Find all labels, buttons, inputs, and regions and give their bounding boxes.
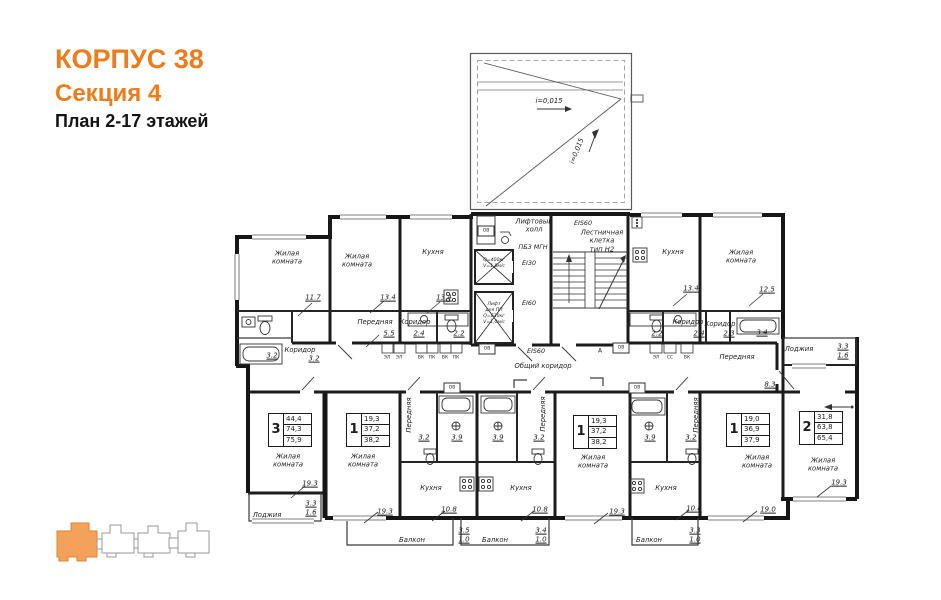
room-area: 12.5 <box>759 286 775 295</box>
lift-hall-label: Лифтовый холл <box>515 218 552 235</box>
vent-box: ОВ <box>613 343 630 354</box>
pbz-label: ПБЗ МГН <box>518 243 547 251</box>
living-area: 19,3 <box>589 416 616 427</box>
room-name: Жилая комната <box>808 457 838 474</box>
keyplan <box>57 523 209 561</box>
shaft-label: ПК <box>453 356 459 361</box>
vent-box: ОВ <box>478 226 495 237</box>
stove-icon <box>630 479 644 493</box>
room-name: Передняя <box>692 397 700 432</box>
apartment-stamp: 1 19,0 36,9 37,9 <box>726 413 770 447</box>
living-area: 19,0 <box>742 414 769 425</box>
lift-spec-label: Лифт для ПП Q=630кг V=1,0м/с <box>483 302 505 326</box>
room-area-reduced: 1.0 <box>458 536 469 545</box>
stove-icon <box>633 248 647 262</box>
staircase-label: Лестничная клетка тип Н2 <box>581 228 624 253</box>
fire-rating-label: EIS60 <box>574 219 592 227</box>
room-area: 2.2 <box>453 330 464 339</box>
room-area: 3.2 <box>266 352 277 361</box>
room-area: 5.5 <box>383 330 394 339</box>
room-area: 3.3 <box>689 527 700 536</box>
room-name: Кухня <box>655 484 676 492</box>
shaft-label: ВК <box>418 356 424 361</box>
apartment-area: 74,3 <box>284 425 311 436</box>
room-area: 2.4 <box>693 330 704 339</box>
apartment-rooms-count: 3 <box>269 414 284 446</box>
room-area: 3.9 <box>451 434 462 443</box>
stairs <box>553 252 628 309</box>
building-title: КОРПУС 38 <box>55 44 204 75</box>
room-area-reduced: 1.6 <box>305 509 316 518</box>
room-area: 13.4 <box>683 285 699 294</box>
total-area: 37,9 <box>742 436 769 446</box>
section-title: Секция 4 <box>55 80 161 108</box>
bathtub-icon <box>439 396 473 413</box>
room-area: 3.9 <box>644 434 655 443</box>
apartment-area: 63,8 <box>815 423 842 434</box>
total-area: 75,9 <box>284 436 311 446</box>
common-corridor-label: Общий коридор <box>514 362 571 370</box>
apartment-stamp: 1 19,3 37,2 38,2 <box>573 415 617 449</box>
room-area: 19.3 <box>302 480 318 489</box>
room-area: 11.7 <box>305 294 321 303</box>
room-area: 8.3 <box>764 381 775 390</box>
total-area: 65,4 <box>815 434 842 444</box>
room-area: 3.2 <box>533 434 544 443</box>
keyplan-section-1 <box>178 523 209 553</box>
shaft-label: ВК <box>442 356 448 361</box>
total-area: 38,2 <box>362 436 389 446</box>
total-area: 38,2 <box>589 438 616 448</box>
shaft-label: ЭЛ <box>384 356 390 361</box>
apartment-rooms-count: 1 <box>574 416 589 448</box>
room-name: Кухня <box>420 484 441 492</box>
apartment-rooms-count: 1 <box>347 414 362 446</box>
service-shafts <box>382 217 693 353</box>
plan-subtitle: План 2-17 этажей <box>55 111 208 132</box>
living-area: 31,8 <box>815 412 842 423</box>
keyplan-section-2 <box>138 526 170 553</box>
room-area: 2.4 <box>413 330 424 339</box>
apartment-stamp: 2 31,8 63,8 65,4 <box>799 411 843 445</box>
keyplan-section-3 <box>102 525 134 553</box>
room-area: 3.3 <box>837 343 848 352</box>
apartment-area: 36,9 <box>742 425 769 436</box>
toilet-icon <box>258 316 272 335</box>
room-area-reduced: 1.6 <box>837 352 848 361</box>
room-area: 10.8 <box>532 506 548 515</box>
room-area: 19.3 <box>609 508 625 517</box>
lift-spec-label: Q=400кг V=1,0м/с <box>483 258 505 270</box>
elevators <box>475 232 513 343</box>
room-name: Кухня <box>422 248 443 256</box>
room-area: 3.3 <box>305 500 316 509</box>
fire-rating-label: EIS60 <box>527 347 545 355</box>
apartment-rooms-count: 1 <box>727 414 742 446</box>
living-area: 19,3 <box>362 414 389 425</box>
room-area: 2.2 <box>651 330 662 339</box>
room-name: Коридор <box>400 318 431 326</box>
room-name: Жилая комната <box>726 249 756 266</box>
roof-slope-label: i=0,015 <box>535 97 562 105</box>
sink-icon <box>452 422 460 430</box>
bathtub-icon <box>481 396 515 413</box>
room-name: Балкон <box>482 536 508 544</box>
room-area: 19.3 <box>377 508 393 517</box>
floor-plan-page: КОРПУС 38 Секция 4 План 2-17 этажей i=0,… <box>0 0 941 600</box>
living-area: 44,4 <box>284 414 311 425</box>
room-name: Жилая комната <box>273 453 303 470</box>
room-name: Жилая комната <box>342 253 372 270</box>
sink-icon <box>494 422 502 430</box>
keyplan-section-4-highlighted <box>57 523 97 561</box>
stove-icon <box>479 477 493 491</box>
room-name: Балкон <box>399 536 425 544</box>
room-name: Кухня <box>510 484 531 492</box>
room-area: 3.4 <box>756 329 767 338</box>
room-area-reduced: 1.0 <box>535 536 546 545</box>
room-name: Передняя <box>405 397 413 432</box>
fire-rating-label: EI60 <box>522 299 536 307</box>
room-area: 10.8 <box>686 505 702 514</box>
wheelchair-icon <box>500 232 511 244</box>
shaft-label: СС <box>667 356 673 361</box>
apartment-stamp: 3 44,4 74,3 75,9 <box>268 413 312 447</box>
room-area: 3.2 <box>308 355 319 364</box>
room-name: Лоджия <box>253 511 282 519</box>
room-name: Лоджия <box>785 345 814 353</box>
apartment-area: 37,2 <box>589 427 616 438</box>
room-area: 3.4 <box>535 527 546 536</box>
apartment-area: 37,2 <box>362 425 389 436</box>
shaft-label: ПК <box>429 356 435 361</box>
room-area: 13.4 <box>380 294 396 303</box>
sink-icon <box>242 317 255 327</box>
vent-box: ОВ <box>444 383 461 394</box>
room-area: 3.2 <box>418 434 429 443</box>
room-name: Передняя <box>719 353 754 361</box>
leader-lines <box>291 294 831 524</box>
room-name: Жилая комната <box>578 454 608 471</box>
room-area: 10.8 <box>441 506 457 515</box>
shaft-label: ЭЛ <box>396 356 402 361</box>
room-area: 19.3 <box>831 479 847 488</box>
roof-plan <box>471 54 644 210</box>
vent-box: ОВ <box>629 383 646 394</box>
room-area: 2.3 <box>723 330 734 339</box>
room-area: 19.0 <box>760 506 776 515</box>
shaft-label: ВК <box>684 356 690 361</box>
room-name: Жилая комната <box>742 454 772 471</box>
room-name: Коридор <box>673 318 704 326</box>
apartment-rooms-count: 2 <box>800 412 815 444</box>
axis-label: А <box>598 347 602 355</box>
stove-icon <box>460 477 474 491</box>
room-name: Жилая комната <box>348 453 378 470</box>
shaft-label: ЭЛ <box>653 356 659 361</box>
room-name: Коридор <box>285 346 316 354</box>
room-name: Балкон <box>636 536 662 544</box>
room-name: Коридор <box>705 320 736 328</box>
room-area: 3.5 <box>458 527 469 536</box>
apartment-stamp: 1 19,3 37,2 38,2 <box>346 413 390 447</box>
room-area: 3.2 <box>685 434 696 443</box>
room-name: Передняя <box>539 396 547 431</box>
entry-arrow <box>824 404 854 410</box>
sink-icon <box>645 422 653 430</box>
room-name: Кухня <box>662 248 683 256</box>
room-name: Передняя <box>357 318 392 326</box>
room-area-reduced: 1.0 <box>689 536 700 545</box>
room-area: 13.4 <box>436 294 452 303</box>
fire-rating-label: EI30 <box>522 259 536 267</box>
room-name: Жилая комната <box>272 250 302 267</box>
room-area: 3.9 <box>492 434 503 443</box>
bathtub-icon <box>629 398 665 415</box>
vent-box: ОВ <box>479 344 496 355</box>
